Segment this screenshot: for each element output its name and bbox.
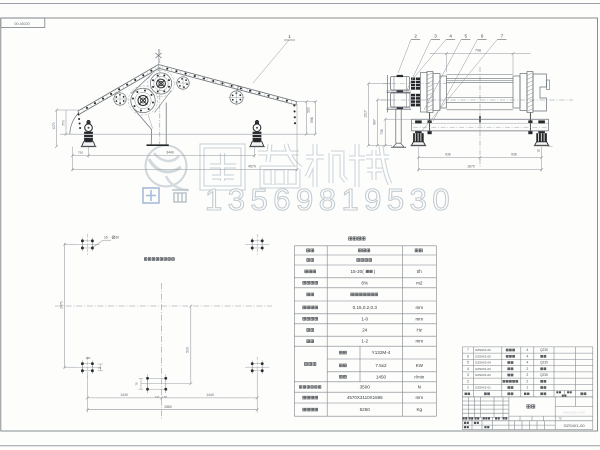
- svg-text:KW: KW: [416, 363, 424, 368]
- svg-text:mm: mm: [415, 395, 423, 400]
- svg-text:936: 936: [445, 153, 451, 157]
- svg-text:Q235: Q235: [540, 348, 548, 352]
- svg-text:Q235: Q235: [540, 361, 548, 365]
- svg-text:N: N: [418, 385, 421, 390]
- svg-text:GZS9X1-05: GZS9X1-05: [475, 354, 491, 358]
- svg-text:mm: mm: [415, 305, 423, 310]
- svg-text:530: 530: [307, 107, 311, 113]
- svg-text:1440: 1440: [206, 393, 214, 397]
- svg-text:798: 798: [475, 49, 481, 53]
- svg-text:GZS9X1-03: GZS9X1-03: [475, 367, 491, 371]
- svg-text:4: 4: [526, 354, 528, 358]
- svg-text:4570X3110X1595: 4570X3110X1595: [347, 395, 383, 400]
- svg-text:t/h: t/h: [417, 269, 423, 274]
- svg-text:78: 78: [134, 382, 138, 386]
- svg-text:Hz: Hz: [416, 328, 422, 333]
- svg-text:4570: 4570: [248, 165, 256, 169]
- svg-text:1: 1: [467, 386, 469, 390]
- svg-text:770: 770: [61, 120, 65, 126]
- svg-text:2880: 2880: [164, 405, 172, 409]
- svg-text:2: 2: [526, 373, 528, 377]
- svg-text:7: 7: [467, 348, 469, 352]
- svg-text:m2: m2: [416, 280, 423, 285]
- svg-text:180: 180: [86, 356, 91, 360]
- svg-text:75: 75: [98, 366, 102, 370]
- svg-text:3: 3: [467, 373, 469, 377]
- svg-text:1-0: 1-0: [361, 316, 368, 321]
- svg-text:730: 730: [380, 129, 384, 135]
- svg-text:6: 6: [467, 354, 469, 358]
- svg-text:2470: 2470: [59, 301, 63, 309]
- svg-text:50: 50: [537, 149, 541, 153]
- svg-text:60: 60: [164, 395, 168, 399]
- svg-text:3500: 3500: [360, 385, 371, 390]
- svg-text:1: 1: [526, 386, 528, 390]
- svg-text:75: 75: [558, 417, 562, 421]
- svg-text:Q235: Q235: [540, 373, 548, 377]
- svg-text:967: 967: [372, 119, 376, 125]
- svg-text:598: 598: [310, 117, 314, 123]
- svg-text:4: 4: [526, 361, 528, 365]
- svg-text:15-20(: 15-20(: [350, 269, 364, 274]
- svg-text:1-2: 1-2: [361, 339, 368, 344]
- svg-text:mm: mm: [415, 339, 423, 344]
- svg-text:GZS9X1-06: GZS9X1-06: [475, 348, 491, 352]
- svg-text:16-: 16-: [104, 236, 109, 240]
- svg-text:2: 2: [467, 379, 469, 383]
- svg-text:00-l4020: 00-l4020: [14, 21, 30, 26]
- svg-text:2: 2: [526, 379, 528, 383]
- svg-text:1440: 1440: [120, 393, 128, 397]
- svg-text:8%: 8%: [361, 280, 368, 285]
- svg-text:r/min: r/min: [414, 374, 424, 379]
- svg-text:130: 130: [155, 395, 160, 399]
- svg-text:GZS9X1-02: GZS9X1-02: [475, 373, 491, 377]
- svg-text:4: 4: [467, 367, 469, 371]
- svg-text:1170: 1170: [52, 122, 56, 129]
- svg-text:1517: 1517: [363, 110, 367, 118]
- svg-text:13569819530: 13569819530: [205, 182, 455, 217]
- svg-text:GZS4X1-00: GZS4X1-00: [563, 423, 585, 428]
- svg-text:5250: 5250: [360, 407, 371, 412]
- svg-text:Kg: Kg: [416, 407, 422, 412]
- svg-text:3440: 3440: [166, 151, 174, 155]
- svg-text:7.5x2: 7.5x2: [375, 363, 387, 368]
- svg-text:750: 750: [78, 151, 83, 155]
- svg-text:30: 30: [116, 236, 120, 240]
- svg-text:GZS9X1-04: GZS9X1-04: [475, 361, 491, 365]
- svg-text:www.gsjx.com: www.gsjx.com: [563, 411, 585, 415]
- svg-text:0.15,0.2,0.3: 0.15,0.2,0.3: [353, 305, 378, 310]
- svg-text:1450: 1450: [376, 374, 387, 379]
- svg-text:Y132M-4: Y132M-4: [372, 350, 391, 355]
- svg-text:503: 503: [185, 347, 189, 353]
- svg-text:24: 24: [362, 328, 368, 333]
- svg-text:5: 5: [467, 361, 469, 365]
- svg-text:1870: 1870: [467, 165, 475, 169]
- svg-text:GZS9X1-01: GZS9X1-01: [475, 386, 491, 390]
- svg-text:mm: mm: [415, 316, 423, 321]
- svg-text:2: 2: [526, 367, 528, 371]
- svg-text:936: 936: [511, 153, 517, 157]
- svg-text:4: 4: [526, 348, 528, 352]
